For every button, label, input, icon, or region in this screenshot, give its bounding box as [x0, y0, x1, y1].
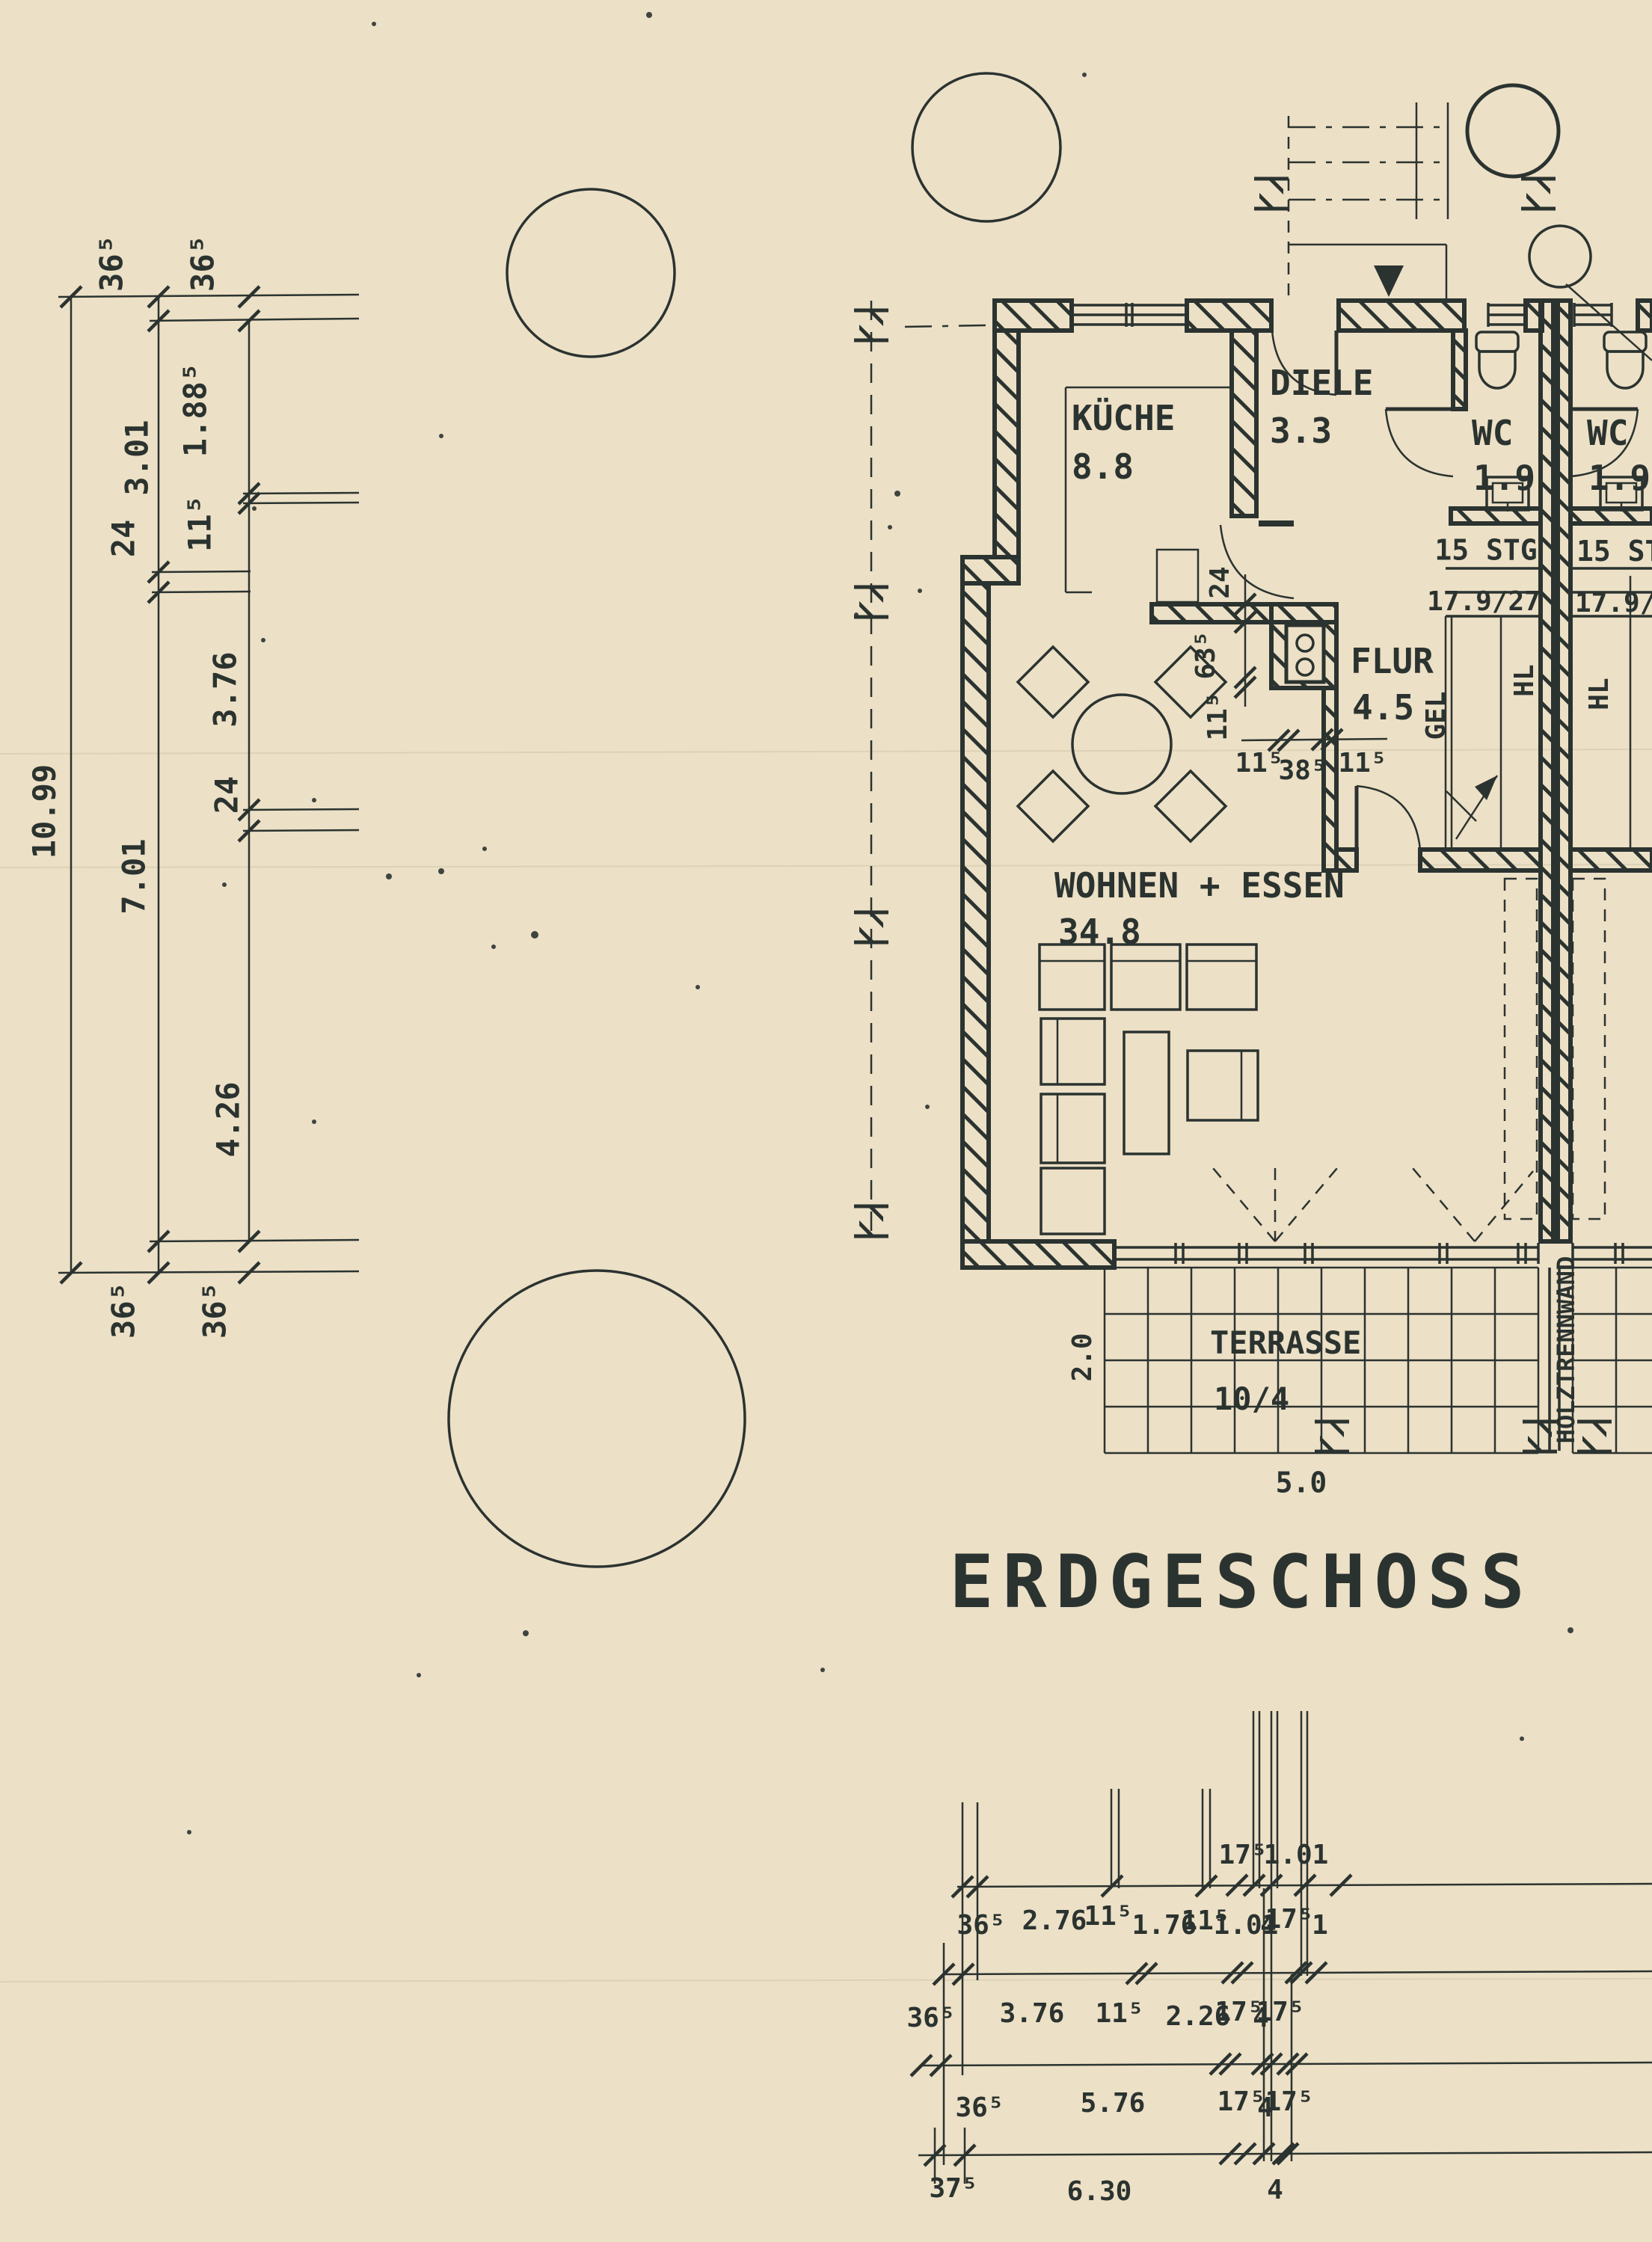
dim-w1: 11⁵ [1235, 748, 1283, 778]
dim-c-3: 3.76 [207, 651, 244, 727]
hl-label-right: HL [1584, 678, 1615, 710]
room-area-terrasse: 10/4 [1214, 1380, 1289, 1417]
dim-r1-1: 2.76 [1022, 1905, 1087, 1936]
dim-r3-4: 17⁵ [1265, 2086, 1313, 2117]
dim-b-3: 7.01 [116, 838, 153, 914]
dim-r1-0: 36⁵ [956, 1910, 1005, 1941]
room-area-flur: 4.5 [1352, 687, 1414, 728]
room-label-diele: DIELE [1270, 363, 1373, 403]
stair-steps-right: 15 STG [1576, 535, 1652, 568]
dim-b-top: 36⁵ [93, 235, 130, 292]
dim-r1-2: 11⁵ [1084, 1901, 1132, 1932]
room-label-wc-left: WC [1472, 413, 1513, 453]
blueprint-page: 10.99 36⁵ 3.01 24 7.01 36⁵ 36⁵ 1.88⁵ 11⁵… [0, 0, 1652, 2242]
room-label-kueche: KÜCHE [1072, 398, 1175, 438]
dim-b-1: 3.01 [119, 420, 156, 495]
hl-label-left: HL [1509, 664, 1540, 696]
dim-c-2: 11⁵ [182, 495, 218, 552]
dim-c-4: 24 [209, 776, 245, 814]
dim-r3-0: 36⁵ [955, 2092, 1004, 2123]
dim-wall-24: 24 [1205, 566, 1235, 598]
room-label-flur: FLUR [1351, 641, 1434, 681]
dim-c-5: 4.26 [210, 1081, 247, 1157]
stair-steps-left: 15 STG [1434, 534, 1537, 567]
stair-ratio-right: 17.9/27 [1575, 588, 1652, 618]
dim-r4-0: 37⁵ [929, 2173, 977, 2204]
dim-terrace-width: 5.0 [1276, 1466, 1327, 1499]
room-area-kueche: 8.8 [1072, 446, 1134, 487]
stair-ratio-left: 17.9/27 [1427, 586, 1541, 617]
vent-shaft [1286, 625, 1324, 682]
room-area-diele: 3.3 [1270, 411, 1332, 451]
dim-c-top: 36⁵ [185, 235, 221, 292]
dim-b-2: 24 [105, 520, 142, 558]
railing-label: GEL [1421, 691, 1452, 740]
dim-r2-1: 3.76 [1000, 1998, 1065, 2029]
dim-r4-1: 6.30 [1067, 2176, 1132, 2207]
dim-c-1: 1.88⁵ [177, 363, 214, 457]
dim-b-bottom: 36⁵ [105, 1282, 142, 1339]
room-area-wc-left: 1.9 [1473, 458, 1535, 498]
dim-r0-0: 17⁵ [1218, 1840, 1267, 1870]
dim-r2-6: 17⁵ [1256, 1997, 1304, 2027]
room-area-wc-right: 1.9 [1588, 458, 1651, 498]
room-label-wc-right: WC [1587, 413, 1628, 453]
paper-background [0, 0, 1652, 2242]
dim-total-height: 10.99 [26, 764, 63, 859]
dim-r2-2: 11⁵ [1095, 1998, 1143, 2029]
dim-r1-7: 17⁵ [1265, 1904, 1313, 1935]
dim-w2: 38⁵ [1278, 755, 1327, 786]
room-area-wohnen: 34.8 [1058, 912, 1141, 952]
dim-r3-1: 5.76 [1081, 2088, 1146, 2119]
dim-r1-8: 1 [1312, 1910, 1328, 1941]
partition-label: HOLZTRENNWAND [1552, 1256, 1580, 1443]
dim-r0-1: 1.01 [1264, 1840, 1329, 1870]
dim-shaft-63: 63⁵ [1191, 630, 1221, 679]
room-label-terrasse: TERRASSE [1210, 1324, 1361, 1361]
dim-terrace-depth: 2.0 [1067, 1333, 1098, 1381]
dim-r2-0: 36⁵ [906, 2003, 955, 2033]
page-title: ERDGESCHOSS [949, 1540, 1533, 1625]
floorplan-canvas: 10.99 36⁵ 3.01 24 7.01 36⁵ 36⁵ 1.88⁵ 11⁵… [0, 0, 1652, 2242]
dim-w3: 11⁵ [1338, 748, 1387, 778]
room-label-wohnen: WOHNEN + ESSEN [1054, 865, 1345, 906]
dim-c-bottom: 36⁵ [197, 1282, 233, 1339]
dim-shaft-11: 11⁵ [1203, 692, 1233, 740]
dim-r4-2: 4 [1267, 2175, 1283, 2205]
